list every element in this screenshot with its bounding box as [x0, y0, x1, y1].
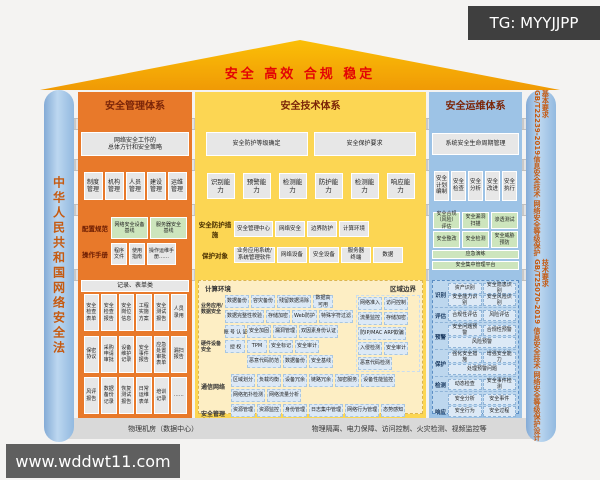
- ops-row-warn: 预警 安全问题预警合规性预警风险预警: [435, 325, 516, 350]
- tech-vertical-box: 账号认证: [225, 325, 245, 338]
- ops-row-label: 预警: [435, 333, 446, 341]
- tech-box: 设备冗余: [283, 374, 307, 387]
- ops-box: 合规性预警: [483, 325, 517, 336]
- ops-box: 安全事件检测: [483, 379, 517, 390]
- ops-row-label: 保护: [435, 360, 446, 368]
- tech-purpose-list: 识别能力预警能力检测能力防护能力检测能力响应能力: [198, 170, 423, 202]
- record-box: 安全岗位信息: [119, 294, 135, 331]
- pillar-cybersecurity-law: 中华人民共和国网络安全法: [44, 90, 74, 442]
- column-operations-title: 安全运维体系: [429, 92, 522, 116]
- tech-box: 流量监控: [358, 312, 382, 325]
- foundation-right-label: 物理隔离、电力保障、访问控制、火灾检测、视频监控等: [262, 424, 536, 434]
- plan-box: 使用 指南: [129, 243, 145, 265]
- ops-row-label: 响应: [435, 408, 446, 416]
- record-box: 设备维护记录: [119, 336, 135, 373]
- plan-box: 程序 文件: [111, 243, 127, 265]
- tech-box: 安全基线: [309, 355, 333, 368]
- record-box: 培训记录: [154, 377, 170, 414]
- plan-box: 服务器安全 基线: [150, 217, 187, 239]
- pillar-right-text-1: GB/T22239-2019信息安全技术 网络安全等级保护基本要求: [533, 90, 550, 258]
- tech-box: 双因素身份认证: [299, 325, 338, 338]
- record-box: 应急处置审批表单: [154, 336, 170, 373]
- tech-plan-row-objects: 保护对象 业务应用系统/ 系统管理软件网络设备安全设备服务器 终端数据: [198, 247, 423, 263]
- purpose-box: 人员管理: [126, 172, 145, 200]
- tech-box: 设备性能监控: [361, 374, 395, 387]
- plan-box: 业务应用系统/ 系统管理软件: [234, 247, 275, 263]
- plan-box-emergency-drill: 应急演练: [432, 250, 519, 259]
- purpose-box: 预警能力: [243, 173, 271, 199]
- purpose-box: 检测能力: [279, 173, 307, 199]
- pillar-right-text-2: GB/T25070-2019 信息安全技术 网络安全等级保护设计技术要求: [533, 259, 550, 442]
- network-row-label: 通信网络: [201, 384, 229, 391]
- pillar-left-text: 中华人民共和国网络安全法: [51, 176, 68, 356]
- plan-box: 服务器 终端: [341, 247, 371, 263]
- tech-box: 安全审计: [295, 340, 319, 353]
- record-box: 采购申请审批: [101, 336, 117, 373]
- tech-box: 区域划分: [231, 374, 255, 387]
- ops-implement-panel: 识别 资产识别安全隐患识别安全能力识别安全风险识别 评估 合规性评估风险评估 预…: [432, 280, 519, 414]
- area-boundary-zone: 网络准入访问控制流量监控存储加密防IP/MAC ARP欺骗入侵检测安全审计恶意代…: [356, 295, 420, 372]
- purpose-box: 机构管理: [105, 172, 124, 200]
- ops-box: 资产识别: [448, 283, 482, 294]
- mgmt-plan-row-config: 配置规范 网络安全设备 基线服务器安全 基线: [81, 217, 189, 239]
- watermark-website: www.wddwt11.com: [6, 444, 180, 478]
- record-box: 数据备份记录: [101, 377, 117, 414]
- tech-box: 存储加密: [266, 310, 290, 323]
- plan-box: 安全管理中心: [234, 221, 273, 237]
- roof-slogan: 安全 高效 合规 稳定: [0, 63, 600, 82]
- tech-box: 数据高 可用: [313, 295, 333, 308]
- tech-plan-row-measures: 安全防护措施 安全管理中心网络安全边界防护计算环境: [198, 219, 423, 239]
- tech-box: 日志集中管理: [309, 404, 343, 417]
- plan-row-label: 配置规范: [81, 223, 109, 233]
- zone-computing-label: 计算环境: [205, 283, 231, 293]
- pillar-gb-standards: GB/T22239-2019信息安全技术 网络安全等级保护基本要求 GB/T25…: [526, 90, 556, 442]
- ops-row-label: 识别: [435, 291, 446, 299]
- tech-box: 恶意代码检测: [358, 357, 392, 370]
- ops-box: 风险预警: [448, 337, 516, 348]
- tech-implement-panel: 计算环境 区域边界 业务应用/ 数据安全 数据备份容灾备份残留数据清除数据高 可…: [198, 280, 423, 414]
- record-box: 工程实施方案: [136, 294, 152, 331]
- ops-box: 合规性评估: [448, 310, 482, 321]
- record-box: 保密协议: [84, 336, 100, 373]
- plan-box: 安全威胁预防: [491, 231, 518, 248]
- tech-box: 漏洞管理: [273, 325, 297, 338]
- watermark-telegram: TG: MYYJJPP: [468, 6, 600, 40]
- record-box: 安全检查报告: [101, 294, 117, 331]
- tech-box: 网络准入: [358, 297, 382, 310]
- purpose-box: 安全计划编制: [434, 171, 449, 201]
- tech-box: 网络流量分析: [267, 389, 301, 402]
- foundation-left-label: 物理机房（数据中心）: [64, 424, 262, 434]
- ops-requirement-box: 系统安全生命周期管理: [432, 133, 519, 155]
- purpose-box: 运维管理: [168, 172, 187, 200]
- tech-box: 态势感知: [381, 404, 405, 417]
- tech-box: 资源管理: [231, 404, 255, 417]
- ops-row-protect: 保护 强化安全措施增强安全能力处理预警问题: [435, 352, 516, 377]
- ops-row-assess: 评估 合规性评估风险评估: [435, 310, 516, 323]
- ops-box: 风险评估: [483, 310, 517, 321]
- record-box: 安全测试报告: [154, 294, 170, 331]
- ops-box: 安全分析: [448, 394, 482, 405]
- ops-box: 安全风险识别: [483, 295, 517, 306]
- tech-box: 数据完整性校验: [225, 310, 264, 323]
- ops-box: 安全行为: [448, 406, 482, 417]
- record-box: 风评报告: [84, 377, 100, 414]
- column-security-management: 安全管理体系 网络安全工作的 总体方针和安全策略 制度管理机构管理人员管理建设管…: [78, 92, 192, 418]
- tech-box: 身份管理: [283, 404, 307, 417]
- tech-box: 防IP/MAC ARP欺骗: [358, 327, 406, 340]
- ops-row-detect: 检测 动态检查安全事件检测: [435, 379, 516, 392]
- purpose-box: 识别能力: [207, 173, 235, 199]
- purpose-box: 安全分析: [468, 171, 483, 201]
- ops-box: 安全问题预警: [448, 325, 482, 336]
- plan-box: 渗透测试: [491, 212, 518, 229]
- plan-box: 安全设备: [309, 247, 339, 263]
- purpose-box: 检测能力: [351, 173, 379, 199]
- ops-box: 动态检查: [448, 379, 482, 390]
- tech-box: 存储加密: [384, 312, 408, 325]
- app-data-security-label: 业务应用/ 数据安全: [201, 295, 223, 323]
- ops-box: 增强安全能力: [483, 352, 517, 363]
- record-box: 人员录用: [171, 294, 187, 331]
- plan-box: 安全合规（风险）评估: [433, 212, 460, 229]
- record-box: 安全事件报告: [136, 336, 152, 373]
- tech-box: 特殊字符过滤: [319, 310, 353, 323]
- tech-requirement-box: 安全防护等级确定: [206, 132, 308, 156]
- record-box: ……: [171, 377, 187, 414]
- record-box: 漏扫报告: [171, 336, 187, 373]
- plan-box: 安全检测: [462, 231, 489, 248]
- tech-box: 访问控制: [384, 297, 408, 310]
- mgmt-requirement-box: 网络安全工作的 总体方针和安全策略: [81, 132, 189, 156]
- ops-box: 安全过程: [483, 406, 517, 417]
- tech-requirement-box: 安全保护要求: [314, 132, 416, 156]
- tech-box: 资源监控: [257, 404, 281, 417]
- ops-box: 安全事件: [483, 394, 517, 405]
- purpose-box: 安全检查: [451, 171, 466, 201]
- ops-row-label: 评估: [435, 312, 446, 320]
- record-box: 恢复测试报告: [119, 377, 135, 414]
- tech-box: 链路冗余: [309, 374, 333, 387]
- record-box: 日常运维表单: [136, 377, 152, 414]
- plan-box: 数据: [373, 247, 403, 263]
- ops-box: 安全能力识别: [448, 295, 482, 306]
- ops-row-label: 检测: [435, 381, 446, 389]
- tech-box: 负载均衡: [257, 374, 281, 387]
- ops-box: 处理预警问题: [448, 364, 516, 375]
- tech-box: 容灾备份: [251, 295, 275, 308]
- hardware-security-label: 硬件设备 安全: [201, 325, 223, 368]
- tech-box: 安全标记: [269, 340, 293, 353]
- column-security-technology: 安全技术体系 安全防护等级确定安全保护要求 识别能力预警能力检测能力防护能力检测…: [195, 92, 426, 418]
- computing-environment-zone: 业务应用/ 数据安全 数据备份容灾备份残留数据清除数据高 可用数据完整性校验存储…: [201, 295, 353, 372]
- ops-plan-panel: 安全合规（风险）评估安全漏洞扫描渗透测试 安全整改安全检测安全威胁预防 应急演练…: [432, 215, 519, 267]
- tech-box: 数据备份: [225, 295, 249, 308]
- purpose-box: 安全执行: [502, 171, 517, 201]
- tech-box: 入侵检测: [358, 342, 382, 355]
- column-technology-title: 安全技术体系: [195, 92, 426, 116]
- plan-box: 安全整改: [433, 231, 460, 248]
- record-box: 安全检查表单: [84, 294, 100, 331]
- mgmt-plan-row-manual: 操作手册 程序 文件使用 指南操作运维手 册……: [81, 243, 189, 265]
- tech-box: 网络行为管理: [345, 404, 379, 417]
- mgmt-implement-header: 记录、表单类: [81, 280, 189, 292]
- tech-vertical-box: 授权: [225, 340, 245, 353]
- tech-box: 加密服务: [335, 374, 359, 387]
- tech-box: 安全加固: [247, 325, 271, 338]
- tech-box: 数据备份: [283, 355, 307, 368]
- ops-row-identify: 识别 资产识别安全隐患识别安全能力识别安全风险识别: [435, 283, 516, 308]
- purpose-box: 制度管理: [84, 172, 103, 200]
- ops-box: 强化安全措施: [448, 352, 482, 363]
- plan-box: 网络设备: [277, 247, 307, 263]
- zone-boundary-label: 区域边界: [390, 283, 416, 293]
- purpose-box: 安全改进: [485, 171, 500, 201]
- ops-purpose-list: 安全计划编制安全检查安全分析安全改进安全执行: [432, 170, 519, 202]
- tech-box: TPM: [247, 340, 267, 353]
- communication-network-row: 通信网络 区域划分负载均衡设备冗余链路冗余加密服务设备性能监控网络拓扑检测网络流…: [201, 374, 420, 402]
- plan-box: 操作运维手 册……: [147, 243, 176, 265]
- purpose-box: 响应能力: [387, 173, 415, 199]
- column-security-operations: 安全运维体系 系统安全生命周期管理 安全计划编制安全检查安全分析安全改进安全执行…: [429, 92, 522, 418]
- foundation-bar: 物理机房（数据中心） 物理隔离、电力保障、访问控制、火灾检测、视频监控等: [64, 418, 536, 439]
- ops-box: 安全隐患识别: [483, 283, 517, 294]
- tech-box: 恶意代码防范: [247, 355, 281, 368]
- purpose-box: 防护能力: [315, 173, 343, 199]
- tech-box: 安全审计: [384, 342, 408, 355]
- plan-box-central-platform: 安全集中管理平台: [432, 261, 519, 270]
- plan-row-label: 操作手册: [81, 249, 109, 259]
- plan-box: 安全漏洞扫描: [462, 212, 489, 229]
- diagram-canvas: TG: MYYJJPP www.wddwt11.com 安全 高效 合规 稳定 …: [0, 0, 600, 480]
- column-management-title: 安全管理体系: [78, 92, 192, 116]
- mgmt-implement-grid: 安全检查表单安全检查报告安全岗位信息工程实施方案安全测试报告人员录用保密协议采购…: [81, 294, 189, 414]
- mgmt-purpose-list: 制度管理机构管理人员管理建设管理运维管理: [81, 170, 189, 202]
- plan-row-label: 保护对象: [198, 250, 232, 260]
- plan-row-label: 安全防护措施: [198, 219, 232, 239]
- tech-box: Web防护: [292, 310, 317, 323]
- plan-box: 网络安全: [275, 221, 305, 237]
- plan-box: 边界防护: [307, 221, 337, 237]
- tech-box: 网络拓扑检测: [231, 389, 265, 402]
- plan-box: 计算环境: [339, 221, 369, 237]
- plan-box: 网络安全设备 基线: [111, 217, 148, 239]
- tech-box: 残留数据清除: [277, 295, 311, 308]
- purpose-box: 建设管理: [147, 172, 166, 200]
